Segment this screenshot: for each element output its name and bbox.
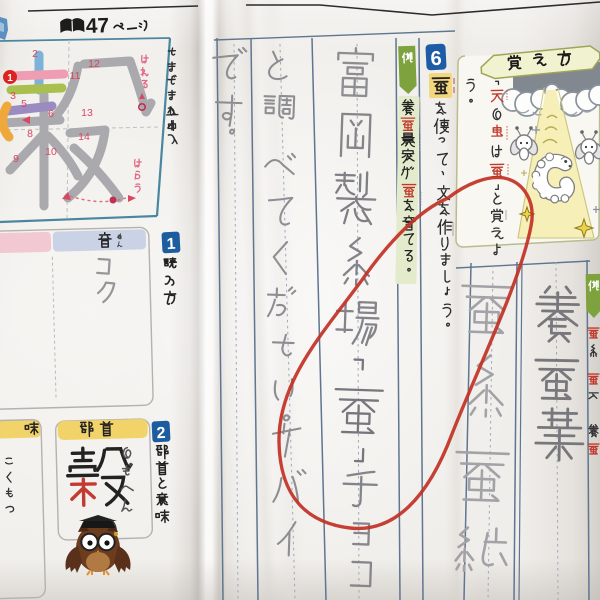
svg-text:3: 3 (10, 90, 16, 102)
svg-text:6: 6 (48, 108, 54, 120)
svg-text:9: 9 (13, 153, 19, 165)
svg-text:6: 6 (430, 48, 442, 71)
svg-text:14: 14 (78, 131, 90, 143)
svg-text:11: 11 (70, 70, 81, 82)
svg-text:12: 12 (88, 58, 100, 70)
svg-text:13: 13 (81, 107, 93, 119)
svg-text:2: 2 (156, 425, 166, 442)
svg-text:10: 10 (45, 146, 57, 158)
svg-text:5: 5 (21, 98, 27, 110)
svg-text:1: 1 (7, 73, 13, 84)
svg-text:2: 2 (32, 48, 38, 60)
svg-text:47: 47 (85, 14, 109, 38)
svg-text:8: 8 (27, 128, 33, 140)
svg-text:1: 1 (166, 236, 176, 253)
